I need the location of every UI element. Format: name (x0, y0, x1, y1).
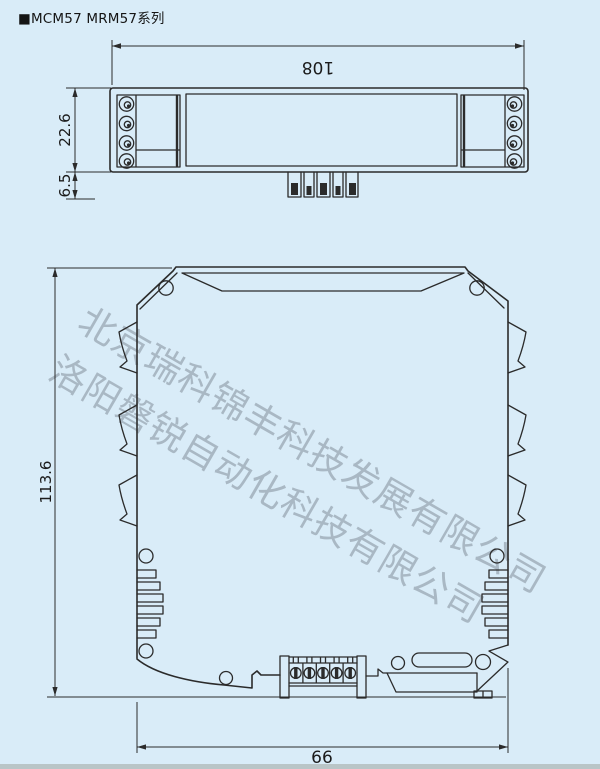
left-rib-bottom-hole (139, 644, 153, 658)
top-right-hole (470, 281, 484, 295)
left-rib-top-hole (139, 549, 153, 563)
left-terminal-screws (119, 97, 133, 168)
din-rail-foot (366, 645, 508, 698)
dim-label-113-6: 113.6 (37, 461, 55, 504)
terminal-block-screws (291, 667, 356, 679)
housing-outline (137, 267, 508, 658)
right-rib-section (482, 570, 508, 638)
bottom-curve-hole (220, 672, 233, 685)
module-body-inner-face (186, 94, 457, 166)
bottom-edge-strip (0, 764, 600, 769)
left-side-flaps (119, 322, 137, 526)
right-side-flaps (508, 322, 526, 526)
drawing-page: ■MCM57 MRM57系列 北京瑞科锦丰科技发展有限公司 洛阳磐锐自动化科技有… (0, 0, 600, 769)
bottom-left-curve (137, 659, 280, 688)
dim-label-22-6: 22.6 (56, 113, 74, 146)
foot-right-hole (476, 655, 491, 670)
right-rib-top-hole (490, 549, 504, 563)
technical-drawing: 108 22.6 6.5 (0, 0, 600, 769)
right-terminal-screws (507, 97, 521, 168)
top-view: 108 22.6 6.5 (56, 40, 528, 199)
foot-top-edge (366, 669, 477, 676)
top-view-dimension-arrows (72, 43, 524, 199)
dim-label-6-5: 6.5 (56, 174, 74, 198)
front-view-dimension-lines (47, 268, 508, 753)
dim-label-108: 108 (302, 57, 334, 77)
module-body-outline (110, 88, 528, 172)
front-view: 113.6 66 (37, 267, 526, 768)
bottom-terminal-block (280, 656, 366, 698)
din-clip-point (477, 645, 508, 691)
foot-slot (412, 653, 472, 667)
housing-top-details (140, 273, 504, 309)
foot-left-hole (392, 657, 405, 670)
left-rib-section (137, 570, 163, 638)
top-view-dimension-lines (66, 40, 524, 199)
foot-trapezoid (387, 673, 477, 692)
